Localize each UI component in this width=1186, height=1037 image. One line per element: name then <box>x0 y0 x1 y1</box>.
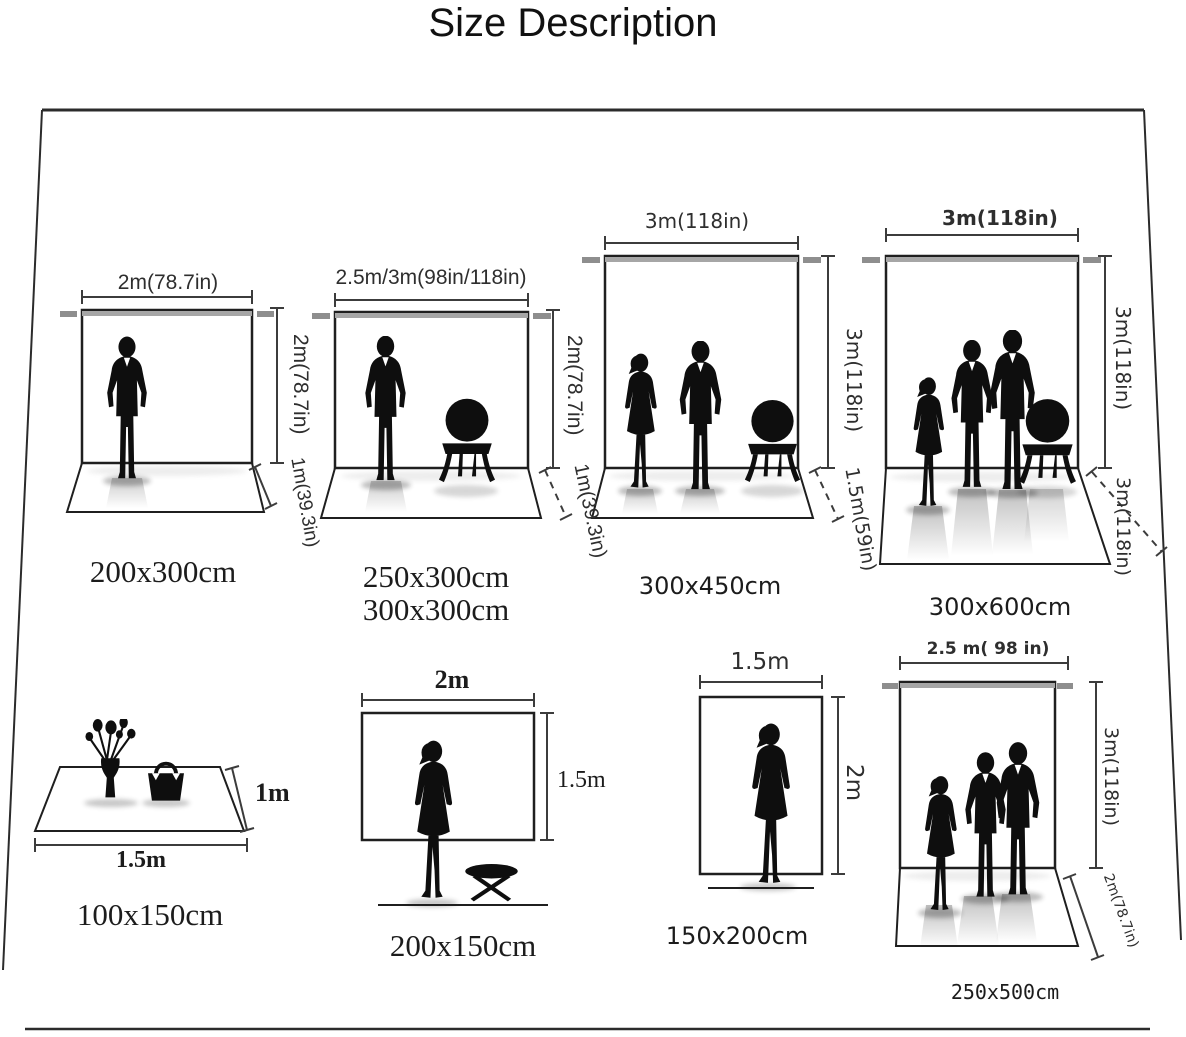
crossbar-end-cap <box>533 313 551 319</box>
b2-height-label: 2m(78.7in) <box>563 335 585 435</box>
crossbar-end-cap <box>882 683 898 689</box>
b1-size-label: 200x300cm <box>90 556 236 589</box>
b6-size-label: 200x150cm <box>390 930 536 963</box>
b3-width-label: 3m(118in) <box>645 211 749 232</box>
b6-width-dimension <box>362 693 534 707</box>
room-right-edge <box>1144 110 1181 940</box>
b5-width-label: 1.5m <box>116 848 166 873</box>
crossbar <box>605 257 798 262</box>
b7-height-label: 2m <box>842 764 866 801</box>
b2-width-label: 2.5m/3m(98in/118in) <box>335 267 526 289</box>
crossbar <box>900 683 1055 688</box>
mat-surface <box>35 767 244 831</box>
b1-width-label: 2m(78.7in) <box>118 272 218 294</box>
b4-height-dimension <box>1098 256 1112 468</box>
backdrop-200x150 <box>362 693 554 907</box>
crossbar-end-cap <box>257 311 274 317</box>
mat-100x150 <box>35 717 254 852</box>
b4-width-label: 3m(118in) <box>942 208 1058 229</box>
b2-height-dimension <box>546 310 560 468</box>
b1-height-label: 2m(78.7in) <box>289 334 311 434</box>
crossbar-end-cap <box>1083 257 1101 263</box>
backdrop-frame <box>335 312 528 468</box>
b7-width-dimension <box>700 675 822 689</box>
b4-floor-label: 3m(118in) <box>1112 477 1132 576</box>
b2-size-label-b: 300x300cm <box>363 594 509 627</box>
b5-size-label: 100x150cm <box>77 899 223 932</box>
b3-height-label: 3m(118in) <box>843 328 864 432</box>
b1-height-dimension <box>270 308 284 463</box>
b8-size-label: 250x500cm <box>951 982 1059 1003</box>
backdrop-frame <box>82 310 252 463</box>
crossbar-end-cap <box>862 257 880 263</box>
room-left-edge <box>3 110 42 970</box>
crossbar-end-cap <box>1057 683 1073 689</box>
crossbar <box>335 313 528 318</box>
b4-width-dimension <box>886 228 1078 242</box>
b4-height-label: 3m(118in) <box>1112 306 1133 410</box>
crossbar <box>82 311 252 316</box>
b6-height-label: 1.5m <box>557 768 606 793</box>
b3-width-dimension <box>605 236 798 250</box>
backdrop-150x200 <box>700 675 845 891</box>
crossbar <box>886 257 1078 262</box>
b3-floor-dimension <box>809 467 844 522</box>
b7-size-label: 150x200cm <box>666 924 808 949</box>
b2-size-label-a: 250x300cm <box>363 561 509 594</box>
folding-stool-silhouette <box>465 864 517 901</box>
crossbar-end-cap <box>803 257 821 263</box>
size-description-infographic: Size Description 2m(78.7in) 2m(78.7in) 1… <box>0 0 1186 1037</box>
b3-height-dimension <box>821 256 835 468</box>
b2-floor-dimension <box>539 467 572 520</box>
backdrop-300x450 <box>582 236 844 522</box>
b5-depth-label: 1m <box>255 779 290 806</box>
b4-size-label: 300x600cm <box>929 595 1071 620</box>
b3-size-label: 300x450cm <box>639 574 781 599</box>
b6-height-dimension <box>540 713 554 840</box>
b2-width-dimension <box>335 293 528 307</box>
backdrop-250x500 <box>882 656 1104 960</box>
crossbar-end-cap <box>60 311 77 317</box>
backdrop-200x300 <box>60 290 284 512</box>
b8-height-label: 3m(118in) <box>1100 727 1120 826</box>
b8-width-label: 2.5 m( 98 in) <box>927 641 1050 659</box>
crossbar-end-cap <box>312 313 330 319</box>
b6-width-label: 2m <box>435 666 470 693</box>
backdrop-250x300 <box>312 293 572 520</box>
crossbar-end-cap <box>582 257 600 263</box>
page-title: Size Description <box>428 2 717 44</box>
b7-width-label: 1.5m <box>731 650 790 674</box>
